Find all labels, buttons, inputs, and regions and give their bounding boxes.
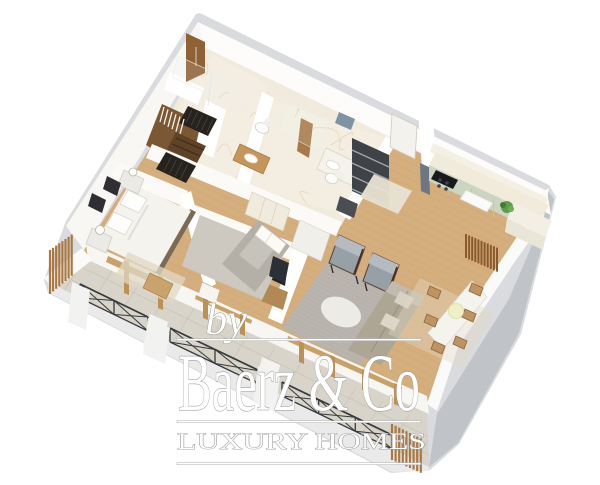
svg-text:LUXURY HOMES: LUXURY HOMES	[177, 429, 426, 454]
svg-text:Baerz & Co: Baerz & Co	[178, 337, 420, 428]
